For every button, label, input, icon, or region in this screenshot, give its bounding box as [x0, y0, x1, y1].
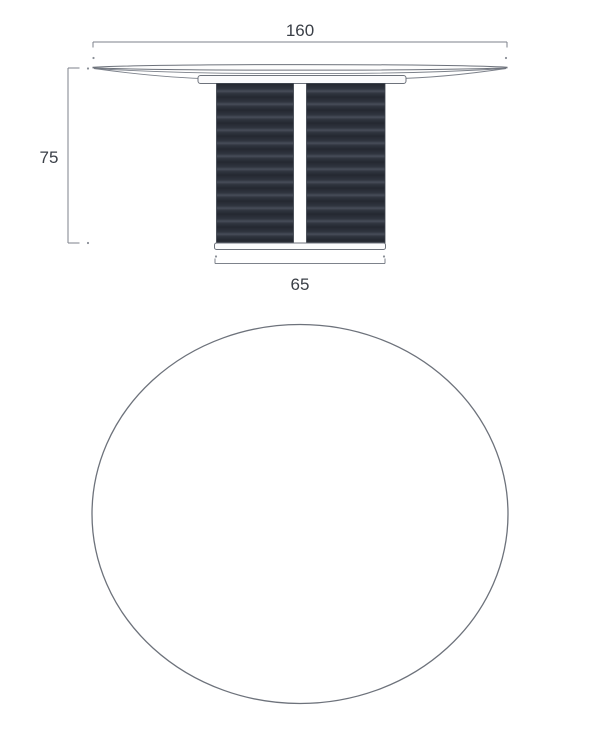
technical-drawing-sheet: 160 75 — [0, 0, 600, 736]
height-dimension-line — [68, 68, 80, 243]
tabletop-circle — [92, 325, 508, 704]
height-dimension: 75 — [40, 67, 90, 244]
extension-dot — [87, 242, 89, 244]
extension-dot — [87, 67, 89, 69]
height-dimension-label: 75 — [40, 148, 59, 167]
width-dimension-line — [93, 42, 507, 48]
width-dimension-label: 160 — [286, 21, 314, 40]
extension-dot — [505, 57, 507, 59]
base-width-dimension-line — [215, 259, 385, 264]
pedestal-base-plinth — [215, 243, 386, 250]
extension-dot — [215, 255, 217, 257]
base-width-dimension-label: 65 — [291, 275, 310, 294]
tabletop-apron — [198, 76, 406, 84]
extension-dot — [92, 57, 94, 59]
tabletop-profile — [93, 65, 507, 71]
pedestal-left-panel — [217, 84, 294, 244]
base-width-dimension: 65 — [215, 255, 385, 294]
extension-dot — [383, 255, 385, 257]
top-plan-view — [92, 325, 508, 704]
dimension-drawing: 160 75 — [0, 0, 600, 736]
pedestal — [215, 84, 386, 250]
front-elevation-view: 160 75 — [40, 21, 508, 294]
width-dimension: 160 — [92, 21, 507, 59]
pedestal-right-panel — [307, 84, 386, 244]
